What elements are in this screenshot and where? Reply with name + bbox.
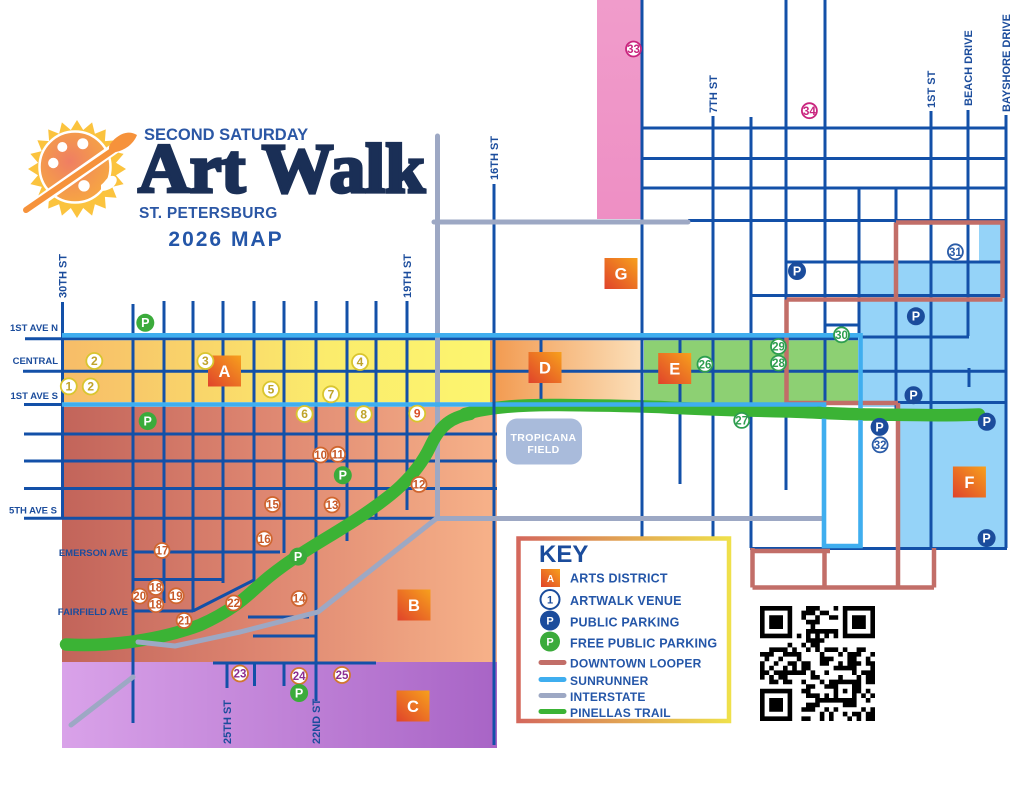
svg-text:ARTS DISTRICT: ARTS DISTRICT: [570, 572, 668, 586]
svg-text:29: 29: [772, 342, 785, 354]
svg-text:BEACH DRIVE: BEACH DRIVE: [963, 30, 975, 106]
svg-text:16TH ST: 16TH ST: [489, 136, 501, 180]
svg-text:P: P: [141, 316, 149, 330]
svg-text:7TH ST: 7TH ST: [708, 75, 720, 113]
svg-text:10: 10: [314, 450, 327, 462]
svg-text:Art Walk: Art Walk: [138, 131, 425, 208]
svg-text:20: 20: [133, 591, 146, 603]
svg-text:F: F: [964, 474, 974, 492]
svg-text:28: 28: [772, 358, 785, 370]
svg-text:EMERSON AVE: EMERSON AVE: [59, 548, 128, 559]
svg-text:23: 23: [234, 669, 247, 681]
svg-text:7: 7: [328, 387, 335, 401]
svg-text:PUBLIC PARKING: PUBLIC PARKING: [570, 616, 680, 630]
svg-text:2: 2: [87, 380, 94, 394]
svg-text:30: 30: [835, 330, 848, 342]
svg-text:17: 17: [156, 546, 169, 558]
svg-text:30TH ST: 30TH ST: [58, 254, 70, 298]
svg-text:DOWNTOWN LOOPER: DOWNTOWN LOOPER: [570, 657, 702, 671]
svg-text:3: 3: [202, 354, 209, 368]
svg-text:ARTWALK VENUE: ARTWALK VENUE: [570, 594, 682, 608]
svg-text:BAYSHORE DRIVE: BAYSHORE DRIVE: [1001, 14, 1013, 112]
svg-text:ST. PETERSBURG: ST. PETERSBURG: [139, 205, 278, 222]
svg-text:13: 13: [326, 500, 339, 512]
svg-text:CENTRAL: CENTRAL: [13, 356, 59, 367]
svg-text:24: 24: [293, 671, 306, 683]
svg-text:1: 1: [547, 595, 553, 607]
svg-text:19: 19: [170, 591, 183, 603]
svg-text:8: 8: [360, 407, 367, 421]
svg-text:1ST AVE N: 1ST AVE N: [10, 323, 58, 334]
svg-text:12: 12: [413, 480, 426, 492]
svg-text:2: 2: [91, 354, 98, 368]
svg-text:P: P: [793, 264, 801, 278]
svg-text:KEY: KEY: [539, 541, 588, 568]
svg-text:18: 18: [149, 600, 162, 612]
svg-text:SUNRUNNER: SUNRUNNER: [570, 674, 649, 688]
svg-text:22: 22: [227, 598, 240, 610]
svg-text:33: 33: [627, 44, 640, 56]
svg-text:1: 1: [65, 379, 72, 393]
svg-text:5TH AVE S: 5TH AVE S: [9, 506, 57, 517]
svg-text:P: P: [546, 616, 553, 628]
svg-text:FAIRFIELD AVE: FAIRFIELD AVE: [58, 607, 128, 618]
svg-text:P: P: [546, 637, 553, 649]
svg-text:A: A: [547, 574, 554, 585]
svg-text:22ND ST: 22ND ST: [311, 698, 323, 744]
svg-text:P: P: [982, 532, 990, 546]
svg-text:1ST ST: 1ST ST: [926, 70, 938, 108]
svg-text:D: D: [539, 359, 551, 377]
svg-text:14: 14: [293, 594, 306, 606]
svg-text:FREE PUBLIC PARKING: FREE PUBLIC PARKING: [570, 637, 717, 651]
svg-text:FIELD: FIELD: [527, 444, 559, 456]
svg-text:B: B: [408, 597, 420, 615]
svg-text:5: 5: [268, 383, 275, 397]
svg-text:P: P: [909, 389, 917, 403]
svg-text:TROPICANA: TROPICANA: [510, 432, 576, 444]
svg-text:34: 34: [803, 106, 816, 118]
svg-text:11: 11: [332, 449, 345, 461]
svg-text:26: 26: [699, 359, 712, 371]
svg-text:C: C: [407, 698, 419, 716]
svg-text:2026 MAP: 2026 MAP: [168, 228, 283, 251]
svg-text:PINELLAS TRAIL: PINELLAS TRAIL: [570, 706, 671, 720]
svg-text:16: 16: [258, 534, 271, 546]
svg-text:G: G: [615, 265, 628, 283]
svg-text:18: 18: [149, 583, 162, 595]
svg-text:32: 32: [874, 440, 887, 452]
svg-text:P: P: [144, 415, 152, 429]
svg-text:6: 6: [301, 407, 308, 421]
svg-text:INTERSTATE: INTERSTATE: [570, 690, 646, 704]
svg-text:25: 25: [336, 670, 349, 682]
svg-text:P: P: [294, 550, 302, 564]
svg-text:P: P: [295, 686, 303, 700]
svg-text:31: 31: [949, 247, 962, 259]
svg-text:P: P: [912, 310, 920, 324]
svg-text:15: 15: [266, 500, 279, 512]
svg-text:25TH ST: 25TH ST: [222, 700, 234, 744]
svg-text:P: P: [983, 415, 991, 429]
svg-text:P: P: [339, 469, 347, 483]
svg-text:A: A: [219, 363, 231, 381]
svg-text:1ST AVE S: 1ST AVE S: [10, 391, 58, 402]
svg-text:19TH ST: 19TH ST: [402, 254, 414, 298]
svg-text:9: 9: [414, 407, 421, 421]
svg-text:27: 27: [735, 416, 748, 428]
svg-text:21: 21: [178, 616, 191, 628]
svg-text:4: 4: [357, 355, 364, 369]
svg-text:E: E: [669, 360, 680, 378]
svg-text:P: P: [875, 420, 883, 434]
